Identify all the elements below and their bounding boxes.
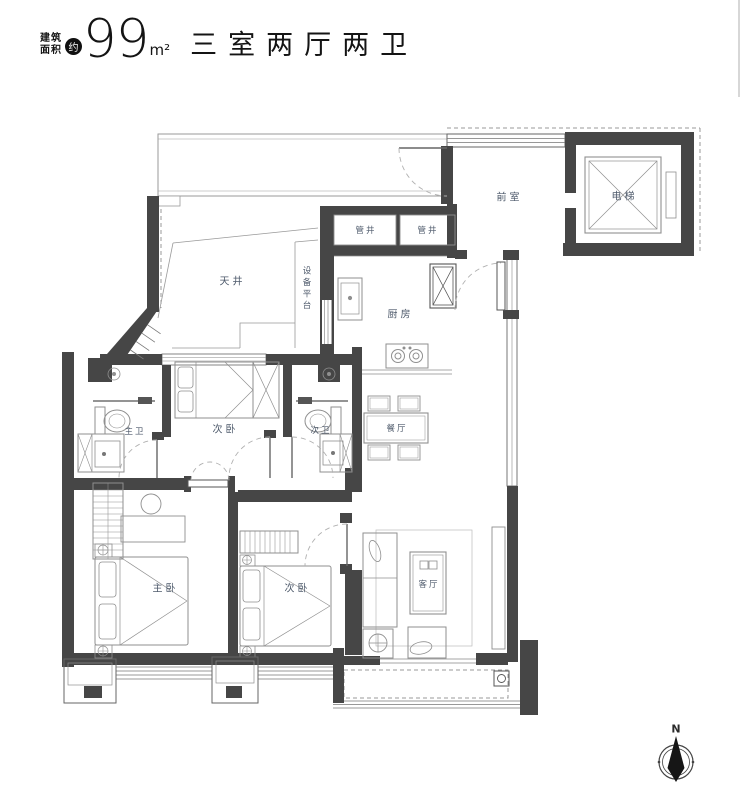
compass-icon [658, 736, 695, 782]
walls-layer [62, 132, 694, 715]
label-kitchen: 厨房 [385, 306, 414, 321]
label-second-bedroom-bottom: 次卧 [282, 580, 311, 595]
label-second-bedroom-top: 次卧 [210, 421, 239, 436]
label-second-bathroom: 次卫 [308, 424, 331, 436]
compass-north-label: N [671, 723, 680, 736]
wall-window-slits [322, 300, 332, 344]
second-bathroom-fixtures [296, 368, 352, 472]
top-corridor-band [158, 134, 447, 206]
master-bedroom-furniture [93, 483, 188, 658]
label-pipe-shaft-left: 管井 [353, 224, 376, 236]
label-master-bedroom: 主卧 [150, 580, 179, 595]
label-pipe-shaft-right: 管井 [415, 224, 438, 236]
label-equipment-platform: 设备平台 [300, 266, 312, 312]
label-dining-room: 餐厅 [384, 422, 407, 434]
label-light-well: 天井 [217, 273, 246, 288]
label-living-room: 客厅 [416, 578, 439, 590]
label-front-room: 前室 [494, 189, 523, 204]
floor-plan-page: 建筑 面积 约 99 m² 三室两厅两卫 [0, 0, 740, 790]
living-room-furniture [363, 527, 505, 658]
label-elevator: 电梯 [609, 188, 638, 203]
master-bathroom-fixtures [78, 368, 155, 472]
second-bedroom-top-furniture [175, 362, 279, 418]
floor-plan-svg [0, 0, 740, 790]
label-master-bathroom: 主卫 [122, 425, 145, 437]
balcony-drain [494, 671, 509, 686]
